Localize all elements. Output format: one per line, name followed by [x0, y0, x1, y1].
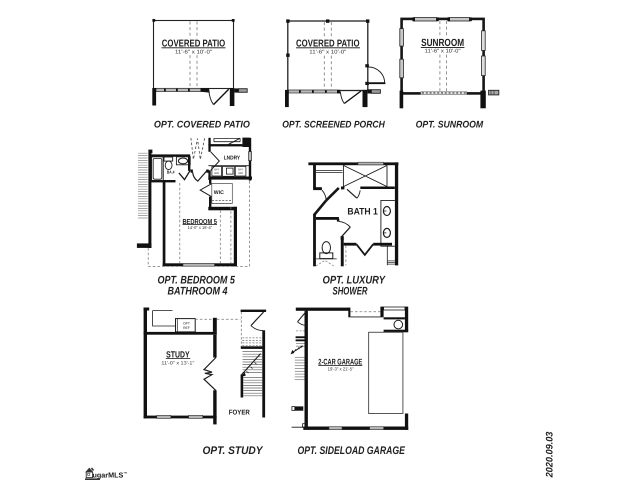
svg-text:11'-0" x 13'-1": 11'-0" x 13'-1" [161, 360, 194, 366]
svg-text:19'-3" x 21'-5": 19'-3" x 21'-5" [328, 367, 354, 372]
svg-text:OPT. SIDELOAD GARAGE: OPT. SIDELOAD GARAGE [297, 445, 405, 457]
svg-text:BATHROOM 4: BATHROOM 4 [168, 285, 228, 297]
svg-text:OPT. SCREENED PORCH: OPT. SCREENED PORCH [282, 119, 385, 130]
svg-text:2020.09.03: 2020.09.03 [545, 431, 556, 478]
svg-text:SHOWER: SHOWER [333, 285, 368, 297]
svg-text:11'-6" x 10'-0": 11'-6" x 10'-0" [309, 49, 346, 55]
svg-text:BA.4: BA.4 [167, 169, 175, 174]
svg-text:W/D: W/D [238, 172, 243, 175]
svg-text:OPT. STUDY: OPT. STUDY [203, 445, 265, 457]
svg-text:W/D: W/D [214, 172, 219, 175]
svg-text:STUDY: STUDY [166, 349, 190, 359]
svg-text:11'-6" x 10'-0": 11'-6" x 10'-0" [425, 49, 461, 55]
svg-text:WIC: WIC [214, 190, 224, 196]
svg-text:OPT. COVERED PATIO: OPT. COVERED PATIO [154, 119, 251, 130]
svg-text:OPT. SUNROOM: OPT. SUNROOM [416, 119, 484, 130]
svg-text:14'-0" x 16'-4": 14'-0" x 16'-4" [188, 225, 213, 230]
svg-text:REF: REF [183, 326, 190, 330]
svg-text:FOYER: FOYER [229, 409, 250, 416]
svg-text:LNDRY: LNDRY [224, 155, 241, 161]
svg-text:11'-6" x 10'-0": 11'-6" x 10'-0" [175, 49, 212, 55]
svg-text:BATH 1: BATH 1 [347, 207, 378, 218]
svg-text:ugarMLS™: ugarMLS™ [93, 471, 128, 480]
